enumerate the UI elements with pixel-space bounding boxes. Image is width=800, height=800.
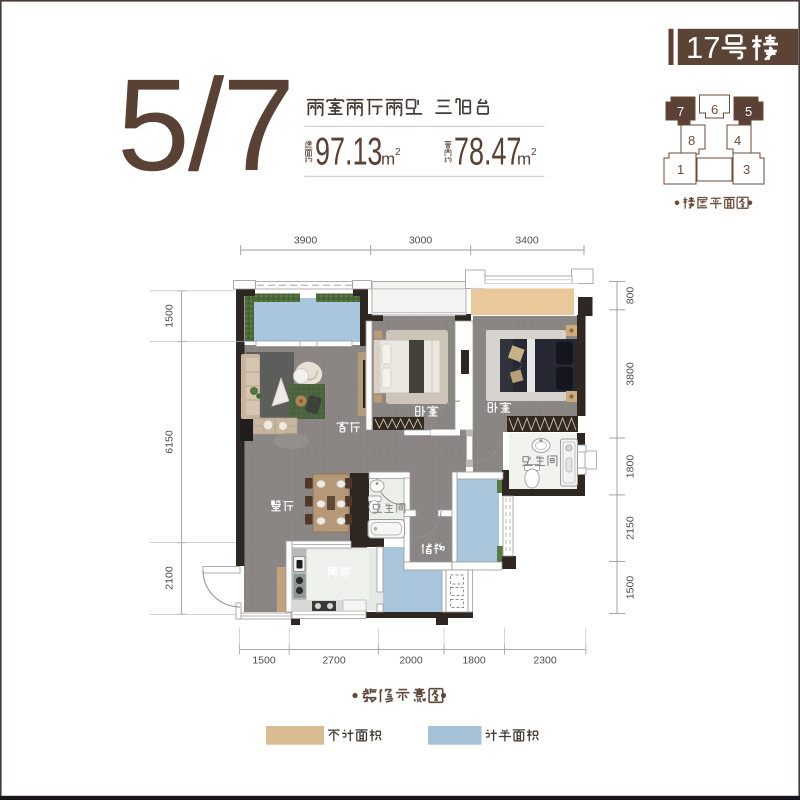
svg-text:3000: 3000 [409, 235, 433, 247]
svg-text:4: 4 [734, 133, 741, 148]
svg-text:3900: 3900 [294, 235, 318, 247]
svg-text:2150: 2150 [625, 516, 637, 540]
svg-text:2: 2 [531, 147, 537, 158]
svg-text:m: m [517, 149, 531, 168]
svg-text:3400: 3400 [515, 235, 539, 247]
svg-text:2000: 2000 [399, 655, 423, 667]
svg-text:5: 5 [745, 104, 752, 119]
svg-text:1500: 1500 [164, 304, 176, 328]
svg-text:3800: 3800 [625, 362, 637, 386]
svg-text:2300: 2300 [533, 655, 557, 667]
svg-text:1500: 1500 [625, 576, 637, 600]
svg-text:7: 7 [677, 104, 684, 119]
svg-text:2: 2 [395, 147, 401, 158]
svg-text:17: 17 [686, 30, 720, 65]
svg-text:1800: 1800 [625, 455, 637, 479]
svg-text:97.13: 97.13 [315, 131, 382, 174]
svg-text:1800: 1800 [462, 655, 486, 667]
svg-text:6150: 6150 [164, 430, 176, 454]
svg-text:78.47: 78.47 [454, 131, 521, 174]
svg-text:1500: 1500 [252, 655, 276, 667]
svg-text:m: m [381, 149, 395, 168]
svg-text:2100: 2100 [164, 566, 176, 590]
svg-text:800: 800 [625, 287, 637, 305]
svg-text:3: 3 [743, 162, 750, 177]
svg-text:2700: 2700 [322, 655, 346, 667]
svg-text:1: 1 [677, 162, 684, 177]
svg-text:5/7: 5/7 [117, 51, 293, 198]
svg-text:6: 6 [711, 102, 718, 117]
svg-text:8: 8 [688, 133, 695, 148]
